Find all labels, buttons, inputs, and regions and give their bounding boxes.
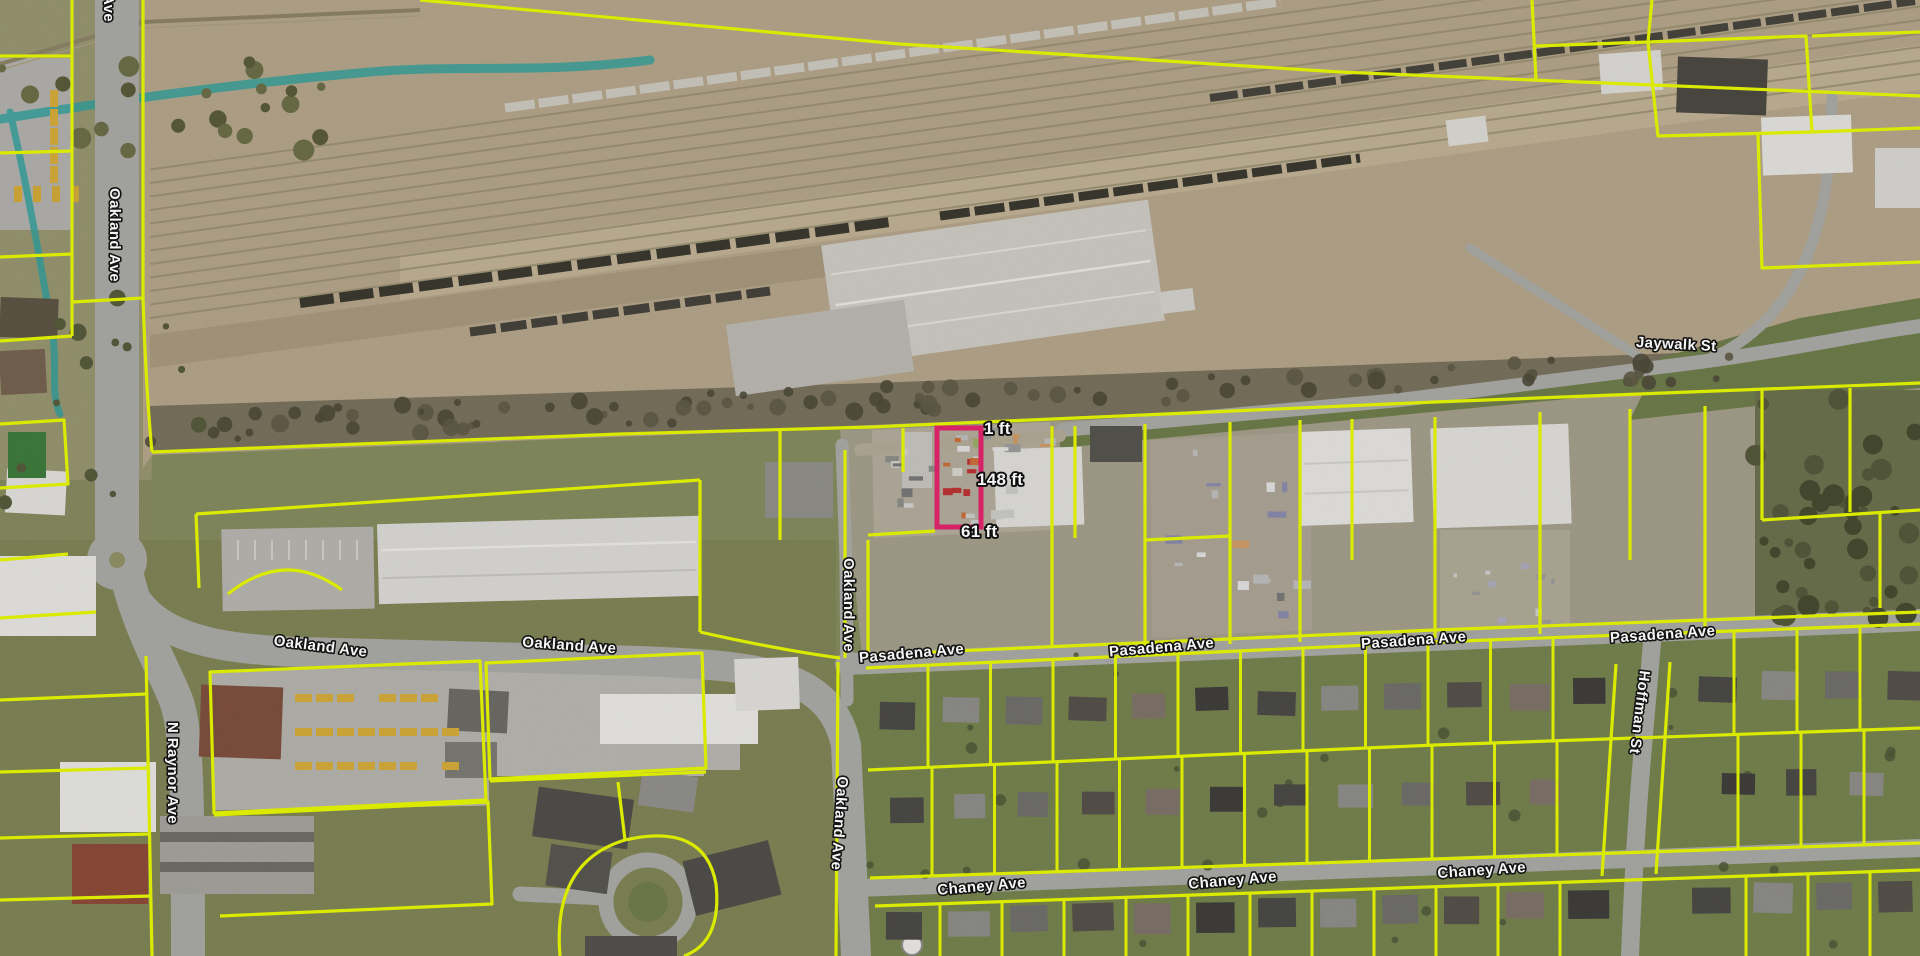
photo-grain — [0, 0, 1920, 956]
aerial-map-canvas[interactable]: 1 ft 148 ft 61 ft Ave Oakland Ave Oaklan… — [0, 0, 1920, 956]
map-viewport[interactable]: 1 ft 148 ft 61 ft Ave Oakland Ave Oaklan… — [0, 0, 1920, 956]
